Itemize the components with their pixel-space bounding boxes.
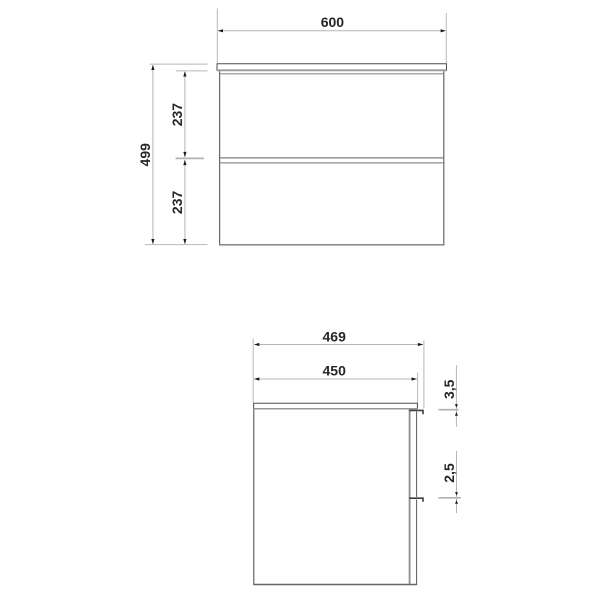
svg-text:450: 450: [323, 363, 347, 379]
svg-text:499: 499: [137, 143, 153, 167]
svg-text:237: 237: [169, 103, 185, 127]
svg-text:2,5: 2,5: [441, 463, 457, 483]
svg-text:237: 237: [169, 191, 185, 215]
svg-text:600: 600: [321, 14, 345, 30]
svg-text:469: 469: [323, 329, 347, 345]
svg-text:3,5: 3,5: [441, 379, 457, 399]
